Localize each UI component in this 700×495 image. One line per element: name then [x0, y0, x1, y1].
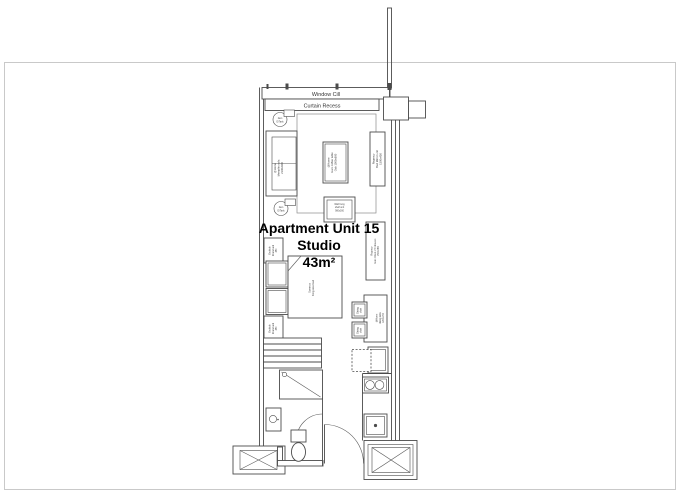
svg-text:Bed Mirror unit: Bed Mirror unit — [375, 150, 379, 168]
ceiling-light-bottom-label: 2am — [279, 207, 284, 209]
shower — [280, 370, 323, 399]
mirror-unit: Regency Bed Mirror unit 1500x450 — [370, 132, 385, 186]
unit-type: Studio — [297, 237, 341, 253]
hob — [363, 377, 389, 393]
svg-text:Dining: Dining — [358, 327, 360, 334]
shaft-box-right — [364, 441, 417, 480]
svg-text:Dining: Dining — [358, 307, 360, 314]
bedside-unit-top: Bedside Round unit 450 — [264, 238, 283, 263]
dining-chair-2: Dining chair — [352, 322, 367, 338]
svg-text:1500x450: 1500x450 — [379, 153, 383, 165]
coffee-table-label: @Home — [326, 157, 330, 167]
curtain-recess-label: Curtain Recess — [304, 104, 341, 110]
sofa: @Home Memphis sofa 2100x900 — [266, 131, 297, 196]
hob-ring-1 — [366, 381, 375, 390]
sink-drain-icon — [374, 424, 377, 427]
window-cill-label: Window Cill — [312, 92, 340, 98]
svg-text:900x300: 900x300 — [335, 210, 345, 212]
chest-label: Regency — [372, 246, 374, 256]
hob-ring-2 — [375, 381, 384, 390]
shelf-unit: Wall hung shelf unit 900x300 — [324, 197, 355, 222]
svg-text:King size bed: King size bed — [311, 279, 315, 296]
dining-table-label: @Home — [377, 313, 379, 322]
bed-label: Somnus — [307, 282, 311, 293]
floorplan-drawing: Window Cill Curtain Recess — [0, 0, 700, 495]
bedside-unit-bottom: Bedside Round unit 450 — [264, 316, 283, 341]
sofa-label: @Home — [273, 163, 277, 173]
svg-text:2100x900: 2100x900 — [280, 162, 284, 174]
bedside-bottom-label: Bedside — [270, 324, 272, 333]
svg-text:Round unit: Round unit — [272, 245, 275, 256]
svg-text:Euro Chest of 6 drawers: Euro Chest of 6 drawers — [374, 238, 377, 264]
ceiling-light-top-label: 2am — [278, 118, 283, 120]
svg-text:chair: chair — [360, 328, 363, 333]
basin — [266, 408, 281, 431]
window-cill-band: Window Cill — [262, 88, 390, 100]
svg-text:Memphis sofa: Memphis sofa — [276, 159, 280, 176]
svg-text:1200x700: 1200x700 — [383, 312, 385, 323]
toilet — [291, 430, 306, 461]
svg-text:dining table: dining table — [379, 311, 382, 323]
floorplan-page: Window Cill Curtain Recess — [0, 0, 700, 495]
svg-text:1500x450: 1500x450 — [378, 245, 380, 256]
svg-text:D/Task: D/Task — [276, 121, 284, 123]
mirror-unit-label: Regency — [371, 153, 375, 164]
svg-text:Oak 1000x600: Oak 1000x600 — [334, 153, 338, 171]
shower-head-icon — [282, 372, 286, 376]
kitchen-sink — [364, 414, 387, 437]
kitchen-appliance-dashed — [352, 350, 371, 372]
svg-text:shelf unit: shelf unit — [335, 206, 345, 209]
shelf-unit-label: Wall hung — [334, 204, 345, 206]
bedside-top-label: Bedside — [270, 246, 272, 255]
svg-text:D/Task: D/Task — [277, 210, 285, 212]
svg-text:Round unit: Round unit — [272, 323, 275, 334]
unit-area: 43m² — [303, 254, 336, 270]
svg-text:Euro coffee table: Euro coffee table — [330, 152, 334, 173]
coffee-table: @Home Euro coffee table Oak 1000x600 — [323, 142, 348, 183]
unit-title: Apartment Unit 15 — [259, 220, 380, 236]
dining-chair-1: Dining chair — [352, 302, 367, 318]
svg-text:chair: chair — [360, 308, 363, 313]
slatted-wardrobe — [264, 338, 322, 368]
curtain-recess-band: Curtain Recess — [265, 99, 379, 111]
